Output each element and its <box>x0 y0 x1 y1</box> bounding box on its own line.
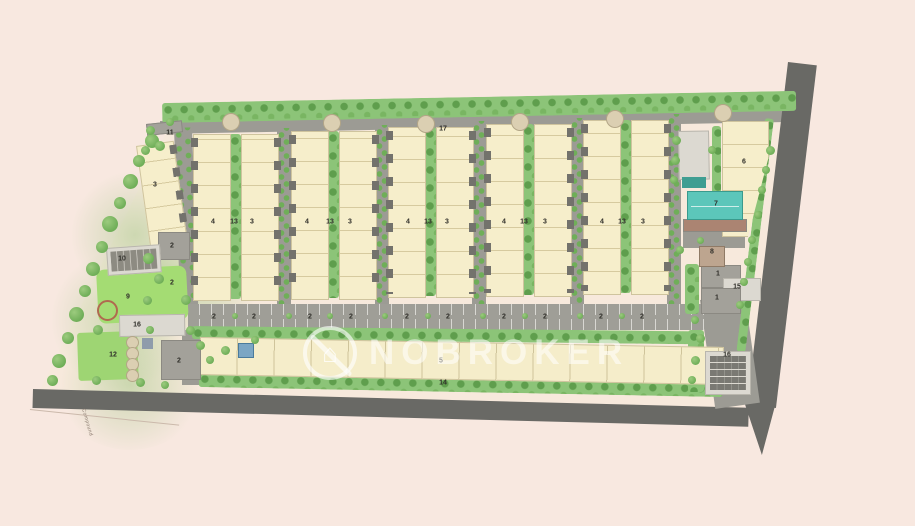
unit-marker-2: 2 <box>502 314 506 321</box>
tree-icon <box>186 326 195 335</box>
tree-icon <box>688 376 696 384</box>
tree-icon <box>123 174 138 189</box>
tree-icon <box>52 354 66 368</box>
tree-icon <box>327 313 333 319</box>
unit-marker-2: 2 <box>599 314 603 321</box>
canopy-tree-icon <box>511 113 529 131</box>
canopy-tree-icon <box>323 114 341 132</box>
tree-icon <box>79 285 91 297</box>
unit-marker-14: 14 <box>439 380 447 387</box>
tree-icon <box>691 316 699 324</box>
pool-deck <box>683 219 747 232</box>
unit-marker-17: 17 <box>439 126 447 133</box>
tree-icon <box>62 332 74 344</box>
tree-icon <box>146 326 154 334</box>
tree-icon <box>480 313 486 319</box>
unit-marker-3: 3 <box>543 219 547 226</box>
canopy-tree-icon <box>714 104 732 122</box>
tree-icon <box>425 313 431 319</box>
unit-marker-3: 3 <box>250 219 254 226</box>
villa-row-building <box>436 127 474 298</box>
unit-marker-13: 13 <box>520 219 528 226</box>
tree-icon <box>69 307 84 322</box>
planter-ring <box>97 300 118 321</box>
unit-marker-2: 2 <box>446 314 450 321</box>
unit-marker-3: 3 <box>153 182 157 189</box>
tree-icon <box>671 156 680 165</box>
unit-marker-7: 7 <box>714 201 718 208</box>
villa-row-building <box>291 131 329 300</box>
tree-icon <box>206 356 214 364</box>
unit-marker-2: 2 <box>212 314 216 321</box>
unit-marker-2: 2 <box>543 314 547 321</box>
tree-icon <box>133 155 145 167</box>
unit-marker-4: 4 <box>211 219 215 226</box>
lap-pool <box>682 177 706 188</box>
unit-marker-13: 13 <box>326 219 334 226</box>
tree-icon <box>102 216 118 232</box>
villa-row-building <box>631 120 669 295</box>
canopy-tree-icon <box>417 115 435 133</box>
water-feature <box>238 343 254 358</box>
unit-marker-4: 4 <box>502 219 506 226</box>
tree-icon <box>522 313 528 319</box>
unit-marker-2: 2 <box>170 243 174 250</box>
unit-marker-4: 4 <box>406 219 410 226</box>
tree-icon <box>47 375 58 386</box>
tree-icon <box>232 313 238 319</box>
unit-marker-3: 3 <box>445 219 449 226</box>
unit-marker-13: 13 <box>424 219 432 226</box>
unit-marker-3: 3 <box>641 219 645 226</box>
tree-icon <box>155 141 165 151</box>
tree-icon <box>697 237 704 244</box>
unit-marker-1: 1 <box>716 271 720 278</box>
tree-icon <box>92 376 101 385</box>
tree-icon <box>154 274 164 284</box>
utility-box <box>142 338 153 349</box>
tree-icon <box>736 301 744 309</box>
no-broker-house-icon: ⌂ <box>303 326 357 380</box>
unit-marker-12: 12 <box>109 352 117 359</box>
tree-icon <box>762 166 770 174</box>
unit-marker-9: 9 <box>126 294 130 301</box>
tree-icon <box>670 176 678 184</box>
planter-column <box>685 264 699 314</box>
unit-marker-2: 2 <box>177 358 181 365</box>
unit-marker-6: 6 <box>742 159 746 166</box>
villa-row-building <box>388 127 426 298</box>
tree-icon <box>758 186 766 194</box>
tree-icon <box>181 295 191 305</box>
tree-icon <box>708 146 716 154</box>
amenity-building <box>119 314 185 337</box>
villa-row-building <box>241 134 279 301</box>
unit-marker-1: 1 <box>715 295 719 302</box>
unit-marker-2: 2 <box>640 314 644 321</box>
tree-icon <box>691 356 700 365</box>
site-plan: 1117321029161224133413341334133413322222… <box>0 0 915 526</box>
tree-icon <box>93 325 103 335</box>
villa-row-building <box>486 124 524 297</box>
tree-icon <box>86 262 100 276</box>
villa-row-building <box>339 131 377 300</box>
unit-marker-13: 13 <box>230 219 238 226</box>
villa-row-building <box>583 120 621 295</box>
tree-icon <box>143 296 152 305</box>
unit-marker-2: 2 <box>405 314 409 321</box>
canopy-tree-icon <box>222 113 240 131</box>
tree-icon <box>221 346 230 355</box>
tree-icon <box>114 197 126 209</box>
tree-icon <box>676 246 684 254</box>
tree-icon <box>251 336 259 344</box>
unit-marker-13: 13 <box>618 219 626 226</box>
unit-marker-2: 2 <box>349 314 353 321</box>
unit-marker-4: 4 <box>305 219 309 226</box>
tree-icon <box>619 313 625 319</box>
unit-marker-16: 16 <box>133 322 141 329</box>
tree-icon <box>146 126 155 135</box>
tree-icon <box>141 146 150 155</box>
clubhouse-building <box>678 130 710 180</box>
unit-marker-4: 4 <box>600 219 604 226</box>
tree-icon <box>136 378 145 387</box>
tree-icon <box>766 146 775 155</box>
tree-icon <box>577 313 583 319</box>
tree-icon <box>672 136 681 145</box>
unit-marker-2: 2 <box>170 280 174 287</box>
tree-icon <box>382 313 388 319</box>
tree-icon <box>696 334 705 343</box>
tree-icon <box>161 381 169 389</box>
tree-icon <box>754 211 762 219</box>
unit-marker-16: 16 <box>723 352 731 359</box>
villa-row-building <box>534 124 572 297</box>
unit-marker-2: 2 <box>308 314 312 321</box>
tree-icon <box>166 118 174 126</box>
tree-icon <box>196 341 205 350</box>
unit-marker-2: 2 <box>252 314 256 321</box>
unit-marker-10: 10 <box>118 256 126 263</box>
watermark: ⌂ NOBROKER <box>303 326 629 380</box>
watermark-brand: NOBROKER <box>369 333 629 373</box>
canopy-tree-icon <box>606 110 624 128</box>
tree-icon <box>96 241 108 253</box>
building-1 <box>701 288 741 314</box>
unit-marker-3: 3 <box>348 219 352 226</box>
tree-icon <box>740 278 748 286</box>
tree-icon <box>143 253 154 264</box>
unit-marker-8: 8 <box>710 249 714 256</box>
tree-icon <box>744 258 752 266</box>
unit-marker-15: 15 <box>733 284 741 291</box>
villa-row-building <box>193 134 231 301</box>
unit-marker-11: 11 <box>166 130 173 137</box>
tree-icon <box>286 313 292 319</box>
tree-icon <box>748 236 756 244</box>
